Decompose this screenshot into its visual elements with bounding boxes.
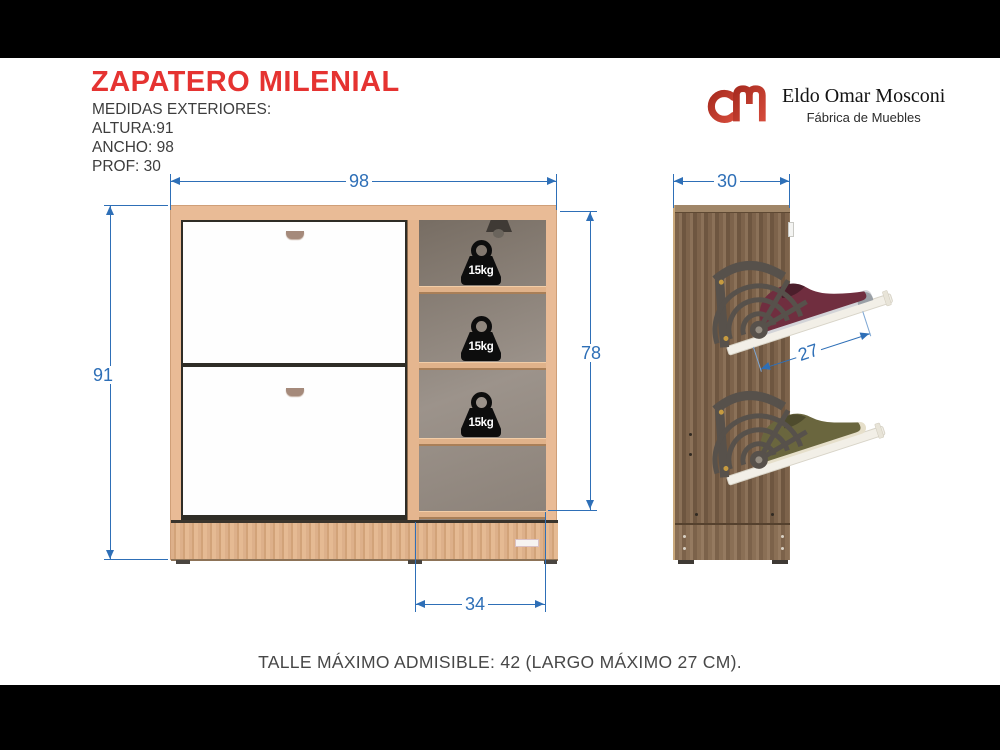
dim-91-ext-bottom [104,559,168,560]
upper-flip-door [183,222,405,363]
shelf-1 [419,286,546,294]
exterior-measures: MEDIDAS EXTERIORES: ALTURA:91 ANCHO: 98 … [92,100,271,176]
arrow-up-icon [106,206,114,215]
arrow-right-icon [547,177,556,185]
weight-label: 15kg [468,265,493,277]
measure-width: ANCHO: 98 [92,138,271,157]
side-foot-right [772,560,788,564]
center-divider [407,220,419,520]
lower-door-handle [286,388,304,396]
weight-label: 15kg [468,341,493,353]
arrow-up-icon [586,212,594,221]
shelf-bottom [419,511,546,519]
dim-30-tick-right [789,174,790,208]
dim-30-label: 30 [714,172,740,190]
door-panel-area [181,220,407,520]
brand-name: Eldo Omar Mosconi [782,85,945,108]
screw-dot [689,433,692,436]
screw-dot [781,547,784,550]
measures-heading: MEDIDAS EXTERIORES: [92,100,271,119]
screw-dot [695,513,698,516]
dim-34-ext-right [545,512,546,612]
door-catch [788,222,794,237]
max-size-note: TALLE MÁXIMO ADMISIBLE: 42 (LARGO MÁXIMO… [0,652,1000,673]
product-spec-sheet: { "header": { "title": "ZAPATERO MILENIA… [0,0,1000,750]
dim-91-label: 91 [90,366,116,384]
lower-flip-door [183,367,405,515]
dim-98-label: 98 [346,172,372,190]
screw-dot [689,453,692,456]
brand-monogram-icon [698,74,770,136]
shoe-tray-bottom [712,384,912,509]
measure-depth: PROF: 30 [92,157,271,176]
letterbox-top [0,0,1000,58]
shelf-2 [419,362,546,370]
arrow-left-icon [171,177,180,185]
front-foot-left [176,560,190,564]
screw-dot [683,547,686,550]
side-foot-left [678,560,694,564]
brand-logo: Eldo Omar Mosconi Fábrica de Muebles [698,72,928,138]
shelf-3 [419,438,546,446]
brand-tagline: Fábrica de Muebles [782,110,945,125]
arrow-right-icon [780,177,789,185]
screw-dot [683,535,686,538]
arrow-down-icon [586,500,594,509]
dim-34-ext-left [415,522,416,612]
page-title: ZAPATERO MILENIAL [91,66,400,99]
arrow-right-icon [535,600,544,608]
screw-dot [771,513,774,516]
upper-door-handle [286,231,304,239]
letterbox-bottom [0,685,1000,750]
base-sticker [515,539,539,547]
dim-78-label: 78 [578,344,604,362]
weight-icon-1: 15kg [461,240,501,285]
cabinet-base [171,520,558,561]
arrow-left-icon [674,177,683,185]
weight-label: 15kg [468,417,493,429]
dim-78-ext-bottom [548,510,597,511]
side-top-edge [675,205,790,213]
screw-dot [781,535,784,538]
measure-height: ALTURA:91 [92,119,271,138]
hinge-knob [493,229,504,238]
weight-icon-3: 15kg [461,392,501,437]
side-base [675,523,790,560]
arrow-left-icon [416,600,425,608]
arrow-down-icon [106,550,114,559]
weight-icon-2: 15kg [461,316,501,361]
dim-34-label: 34 [462,595,488,613]
dim-98-tick-right [556,174,557,210]
